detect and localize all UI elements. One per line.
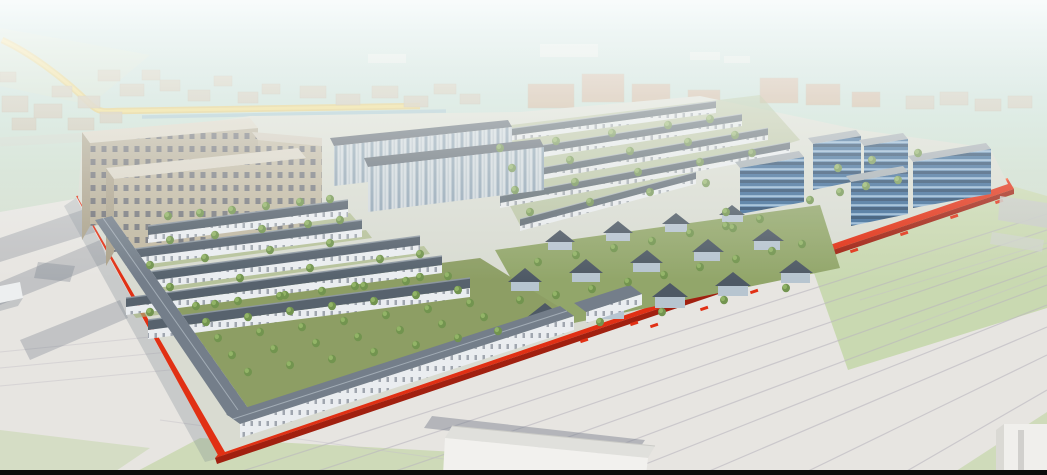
render-viewport: Aerial 3D master-plan rendering of a mix… — [0, 0, 1047, 475]
global-haze — [0, 0, 1047, 475]
bottom-frame — [0, 470, 1047, 475]
masterplan-render: Aerial 3D master-plan rendering of a mix… — [0, 0, 1047, 475]
